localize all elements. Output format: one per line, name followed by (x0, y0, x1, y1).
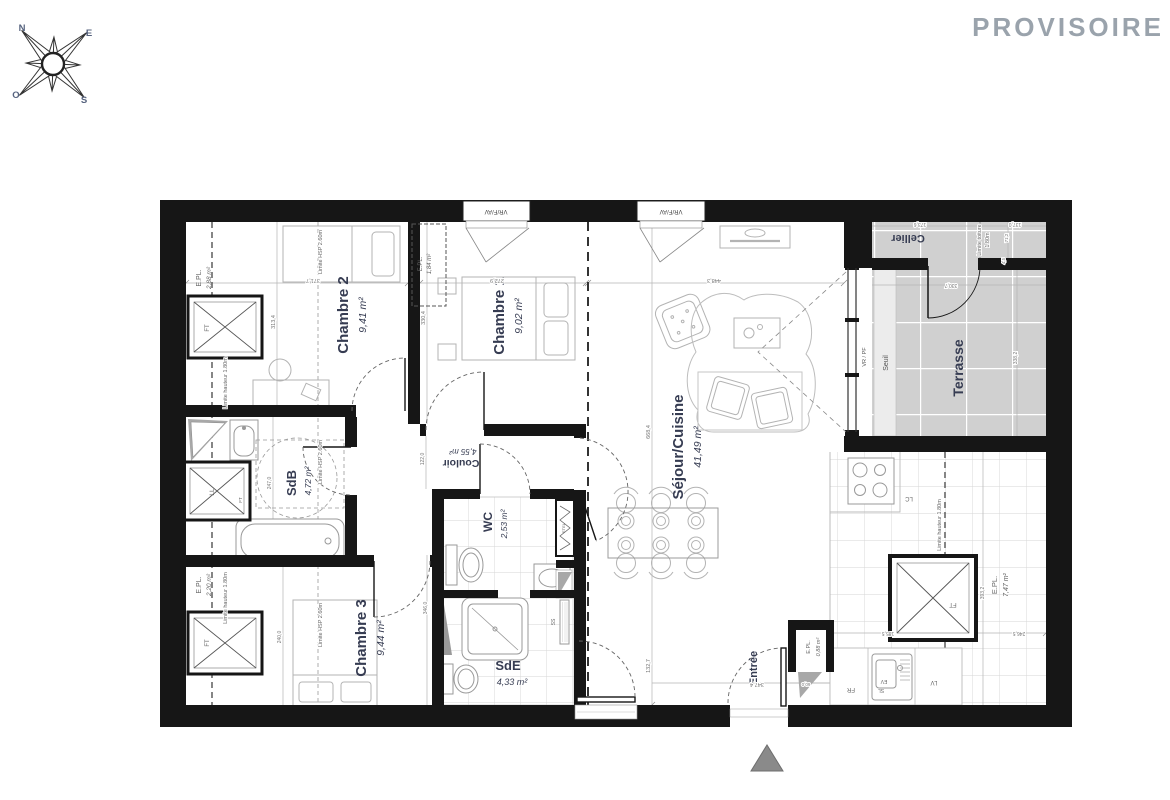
seuil-label: Seuil (883, 355, 890, 371)
limite-hsp-2: Limite HSP 2.60m (318, 439, 324, 484)
ft-chambre3-label: FT (205, 639, 211, 647)
ft-kitchen-label: FT (949, 601, 957, 607)
etel-label: ETEL (561, 522, 566, 533)
dim-1220: 122,0 (420, 453, 426, 466)
compass-n-label: N (19, 23, 26, 34)
chambre2-label: Chambre 2 (335, 276, 352, 354)
limite-hauteur-3: Limite hauteur 1.80m (937, 499, 943, 551)
ss-label: SS (551, 618, 557, 625)
sde-label: SdE (495, 658, 521, 673)
dim-1736: 173,6 (914, 221, 927, 227)
entree-label: Entrée (748, 651, 760, 685)
dim-712: 71,2 (1004, 233, 1009, 242)
sl-label: SL (878, 687, 884, 693)
dim-6684: 668,4 (646, 425, 652, 439)
dim-3304: 330,4 (421, 311, 427, 325)
epl288-area: 2,88 m² (206, 266, 213, 290)
epl220-label: E.PL. (196, 576, 203, 593)
dim-4483: 448,3 (707, 277, 721, 283)
compass-s-label: S (81, 95, 87, 106)
epl747-label: E.PL. (990, 576, 999, 594)
cellier-label: Cellier (890, 232, 924, 244)
chambre3-area: 9,44 m² (375, 620, 387, 656)
ev-label: EV (880, 678, 887, 684)
dim-2465: 246,5 (1013, 630, 1026, 636)
terrasse-label: Terrasse (950, 339, 966, 397)
dining-table (608, 487, 718, 579)
etel-closet (556, 500, 574, 598)
epl288-label: E.PL. (196, 269, 203, 286)
slider-label: VR / PF (862, 347, 868, 367)
dim-3134: 313,4 (271, 315, 277, 329)
fr-label: FR (846, 686, 855, 692)
dim-3474: 347,4 (750, 681, 764, 687)
floor-plan-page: PROVISOIRE N E S O (0, 0, 1170, 800)
epl088-area: 0,88 m² (816, 638, 822, 657)
ll-label: LL (209, 488, 216, 496)
lc-label: LC (904, 495, 912, 501)
chambre3-label: Chambre 3 (353, 599, 370, 677)
dim-3382: 338,2 (1013, 352, 1019, 365)
skylight-ft-chambre2 (188, 296, 262, 358)
epl220-area: 2,20 m² (206, 573, 213, 597)
dim-2729: 272,9 (490, 277, 504, 283)
skylight-ft-kitchen (890, 556, 976, 640)
sdb-area: 4,72 m² (303, 465, 313, 495)
skylight-ft-sdb (184, 462, 250, 520)
compass-e-label: E (86, 28, 92, 39)
chambre2-area: 9,41 m² (357, 297, 369, 333)
dim-2400: 240,0 (277, 631, 283, 644)
chambre1-label: Chambre 1 (491, 277, 508, 355)
couloir-area: 4,55 m² (449, 447, 476, 456)
limite-toiture-1: Limite toiture (977, 224, 983, 256)
dim-600: 60,0 (801, 682, 810, 687)
compass-rose-icon: N E S O (0, 0, 118, 129)
opening-labels: VR/F/AV VR/F/AV VR / PF Seuil (485, 208, 890, 371)
limite-hauteur-2: Limite hauteur 1.80m (223, 572, 229, 624)
epl184-label: E.PL. (418, 256, 424, 271)
sejour-label: Séjour/Cuisine (670, 394, 687, 499)
wc-area: 2,53 m² (499, 508, 509, 539)
epl747-area: 7,47 m² (1003, 572, 1010, 596)
dim-1327: 132,7 (646, 659, 652, 673)
lv-label: LV (931, 679, 938, 685)
sde-area: 4,33 m² (497, 677, 529, 687)
compass-o-label: O (12, 90, 19, 101)
window1-label: VR/F/AV (485, 208, 508, 214)
ft-sdb-label: FT (238, 497, 243, 503)
epl184-area: 1,84 m² (427, 253, 433, 274)
window2-label: VR/F/AV (660, 208, 683, 214)
dim-3307: 330,7 (945, 282, 958, 288)
limite-hsp-3: Limite HSP 2.60m (318, 602, 324, 647)
dim-2470: 247,0 (267, 477, 273, 490)
dim-1370: 137,0 (1009, 221, 1022, 227)
wc-label: WC (481, 512, 495, 532)
epl088-label: E.PL. (806, 640, 812, 654)
entrance-marker-icon (751, 745, 783, 771)
provisoire-watermark: PROVISOIRE (972, 12, 1164, 42)
sejour-area: 41,49 m² (692, 426, 704, 468)
floor-plan-svg: PROVISOIRE N E S O (0, 0, 1170, 800)
ft-chambre2-label: FT (205, 324, 211, 332)
dim-45: 4,5 (1001, 257, 1006, 264)
couloir-label: Couloir (443, 457, 480, 469)
limite-toiture-2: 1.80m (985, 232, 991, 248)
dim-1855: 185,5 (882, 630, 895, 636)
dim-3932: 393,2 (980, 587, 986, 600)
dim-3460: 346,0 (423, 602, 429, 615)
seuil-strip (874, 268, 896, 436)
terrasse-floor (872, 222, 1046, 436)
dim-3717: 371,7 (306, 277, 320, 283)
limite-hauteur-1: Limite hauteur 1.80m (223, 357, 229, 409)
sdb-label: SdB (284, 470, 299, 496)
chambre1-area: 9,02 m² (513, 298, 525, 334)
limite-hsp-1: Limite HSP 2.60m (318, 229, 324, 274)
